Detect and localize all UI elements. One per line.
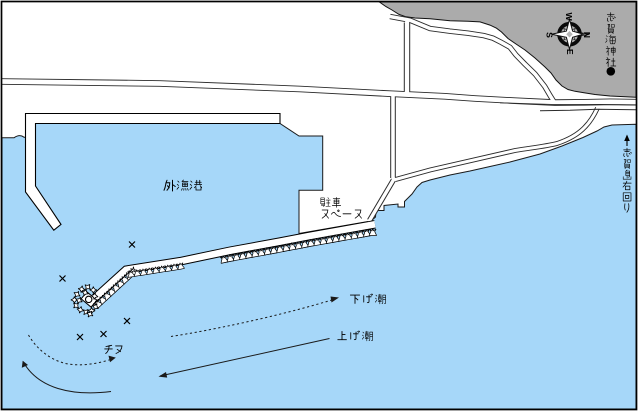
svg-text:E: E [565, 49, 575, 55]
svg-text:W: W [564, 13, 574, 22]
svg-text:N: N [582, 32, 592, 38]
svg-text:S: S [545, 32, 555, 38]
